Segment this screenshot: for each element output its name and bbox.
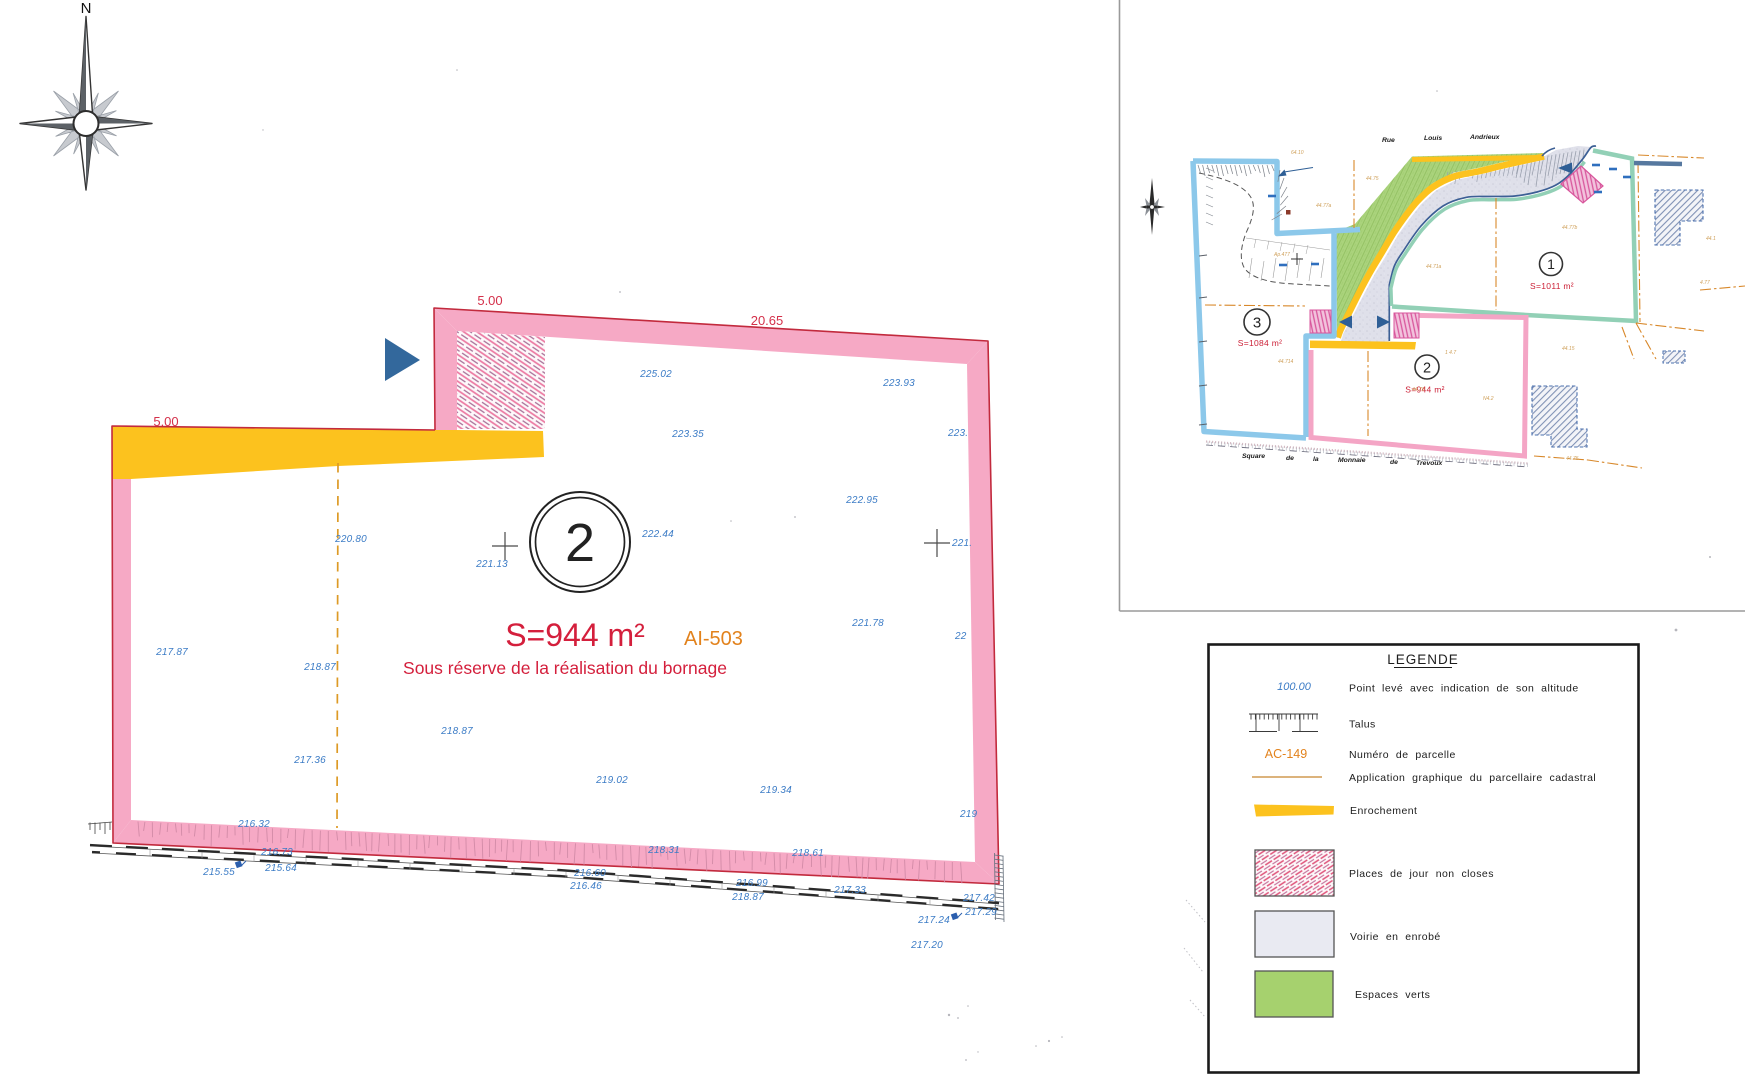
- svg-text:217.87: 217.87: [155, 647, 188, 658]
- svg-text:Square: Square: [1242, 453, 1265, 460]
- svg-text:218.31: 218.31: [647, 845, 680, 856]
- svg-text:220.80: 220.80: [334, 534, 367, 545]
- svg-text:217.20: 217.20: [910, 940, 943, 951]
- svg-text:215.64: 215.64: [264, 863, 297, 874]
- svg-text:219: 219: [959, 809, 978, 820]
- svg-text:223.93: 223.93: [882, 378, 915, 389]
- svg-text:Voirie en enrobé: Voirie en enrobé: [1350, 931, 1441, 943]
- svg-text:44.714: 44.714: [1278, 359, 1294, 365]
- svg-text:225.02: 225.02: [639, 369, 672, 380]
- svg-text:Ap.477: Ap.477: [1273, 252, 1290, 258]
- svg-text:Sous réserve de la réalisation: Sous réserve de la réalisation du bornag…: [403, 658, 727, 678]
- svg-text:222.95: 222.95: [845, 495, 878, 506]
- svg-text:44.75: 44.75: [1566, 456, 1579, 462]
- svg-text:44.71a: 44.71a: [1426, 264, 1442, 270]
- svg-text:Rue: Rue: [1382, 137, 1395, 144]
- svg-text:215.55: 215.55: [202, 867, 235, 878]
- svg-text:N: N: [81, 0, 92, 17]
- svg-text:219.02: 219.02: [595, 775, 628, 786]
- svg-text:4.77: 4.77: [1700, 280, 1710, 286]
- svg-text:Andrieux: Andrieux: [1469, 134, 1501, 141]
- svg-text:N4.2: N4.2: [1483, 396, 1494, 402]
- svg-text:216.32: 216.32: [237, 819, 270, 830]
- svg-text:Places de jour non closes: Places de jour non closes: [1349, 868, 1494, 880]
- svg-text:217.42: 217.42: [962, 893, 995, 904]
- svg-text:1: 1: [1547, 256, 1555, 272]
- svg-text:S=1084 m²: S=1084 m²: [1238, 338, 1283, 348]
- svg-text:223.35: 223.35: [671, 429, 704, 440]
- svg-text:S=944 m²: S=944 m²: [505, 617, 645, 653]
- svg-text:218.87: 218.87: [303, 662, 336, 673]
- svg-text:44.77a: 44.77a: [1316, 203, 1332, 209]
- svg-text:LEGENDE: LEGENDE: [1387, 652, 1459, 667]
- svg-text:de: de: [1286, 455, 1294, 462]
- svg-text:Point levé avec indication de: Point levé avec indication de son altitu…: [1349, 683, 1579, 695]
- svg-text:218.61: 218.61: [791, 848, 824, 859]
- svg-text:217.33: 217.33: [833, 885, 866, 896]
- svg-text:64.10: 64.10: [1291, 150, 1304, 156]
- svg-text:216.73: 216.73: [260, 847, 293, 858]
- svg-text:3: 3: [1253, 315, 1261, 332]
- svg-text:216.46: 216.46: [569, 881, 602, 892]
- svg-text:217.24: 217.24: [917, 915, 950, 926]
- svg-text:1 4.7: 1 4.7: [1445, 350, 1456, 356]
- svg-text:44.15: 44.15: [1562, 346, 1575, 352]
- svg-text:de: de: [1390, 459, 1398, 466]
- svg-text:5.00: 5.00: [153, 414, 178, 429]
- svg-text:218.87: 218.87: [440, 726, 473, 737]
- svg-text:221.13: 221.13: [475, 559, 508, 570]
- svg-text:2: 2: [565, 513, 595, 573]
- svg-text:Numéro de parcelle: Numéro de parcelle: [1349, 749, 1456, 761]
- svg-text:221.78: 221.78: [851, 618, 884, 629]
- svg-text:216.60: 216.60: [573, 868, 606, 879]
- svg-text:223.: 223.: [947, 428, 968, 439]
- svg-text:221.: 221.: [951, 538, 972, 549]
- svg-text:44.1: 44.1: [1706, 236, 1716, 242]
- svg-text:217.36: 217.36: [293, 755, 326, 766]
- svg-text:44.70: 44.70: [1412, 387, 1425, 393]
- svg-text:216.99: 216.99: [735, 878, 768, 889]
- svg-text:22: 22: [954, 631, 967, 642]
- svg-text:44.77b: 44.77b: [1562, 225, 1578, 231]
- svg-text:Talus: Talus: [1349, 719, 1376, 731]
- svg-text:44.75: 44.75: [1366, 176, 1379, 182]
- svg-text:Louis: Louis: [1424, 135, 1442, 142]
- svg-text:Espaces verts: Espaces verts: [1355, 989, 1430, 1001]
- svg-text:2: 2: [1423, 361, 1431, 377]
- svg-text:219.34: 219.34: [759, 785, 792, 796]
- svg-text:5.00: 5.00: [477, 293, 502, 308]
- svg-text:100.00: 100.00: [1277, 681, 1312, 693]
- svg-text:20.65: 20.65: [751, 313, 784, 328]
- svg-text:222.44: 222.44: [641, 529, 674, 540]
- svg-text:Application graphique du parce: Application graphique du parcellaire cad…: [1349, 772, 1596, 784]
- svg-text:217.29: 217.29: [964, 907, 997, 918]
- svg-text:218.87: 218.87: [731, 892, 764, 903]
- svg-text:Monnaie: Monnaie: [1338, 457, 1366, 464]
- svg-text:la: la: [1313, 456, 1319, 463]
- svg-text:AI-503: AI-503: [684, 628, 743, 650]
- svg-text:S=1011 m²: S=1011 m²: [1530, 281, 1574, 291]
- svg-text:AC-149: AC-149: [1265, 747, 1307, 761]
- svg-text:Enrochement: Enrochement: [1350, 805, 1417, 817]
